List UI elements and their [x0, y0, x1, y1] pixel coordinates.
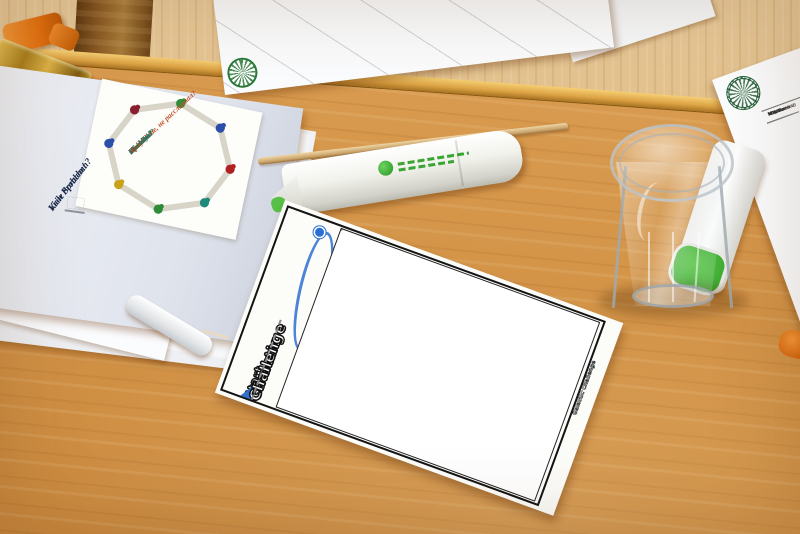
glass-base	[632, 284, 714, 308]
green-wreath-logo-icon	[722, 71, 766, 115]
flag-logo-icon	[67, 197, 84, 210]
glass-rim-inner	[619, 133, 725, 193]
flag-logo-caption-line	[65, 209, 85, 213]
desk-photo-scene: Referenzzentren der SPIN-Regionen 5. Nov…	[0, 0, 800, 534]
name-table: Name VDir. Kub RABVDir. GerhardHDir. Lor…	[762, 66, 800, 111]
drinking-glass	[610, 124, 734, 308]
octagon-with-pins-icon	[75, 79, 262, 240]
octagon-panel: Wie bitte?Sorry?Unnskyld?Простите, не ра…	[75, 79, 262, 240]
board-cell-lion	[341, 229, 342, 230]
